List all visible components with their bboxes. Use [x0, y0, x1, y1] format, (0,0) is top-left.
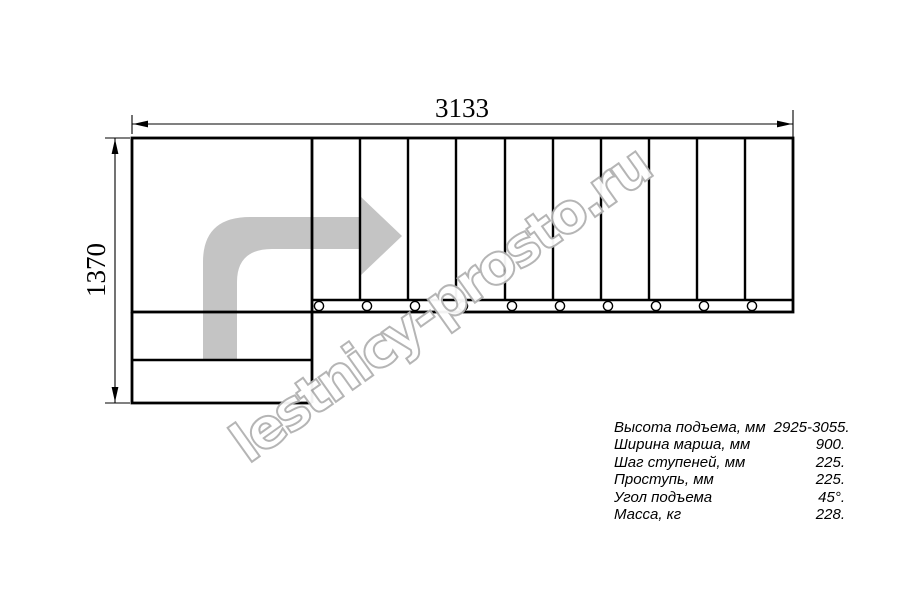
- spec-label: Шаг ступеней, мм: [614, 454, 745, 471]
- spec-label: Масса, кг: [614, 506, 681, 523]
- spec-value: 228.: [808, 506, 845, 523]
- spec-label: Ширина марша, мм: [614, 436, 750, 453]
- spec-value: 2925-3055.: [766, 419, 850, 436]
- spec-value: 45°.: [810, 489, 845, 506]
- spec-value: 900.: [808, 436, 845, 453]
- spec-row: Масса, кг 228.: [614, 506, 845, 523]
- watermark-text: lestnicy-prosto.ru: [219, 133, 662, 475]
- spec-label: Высота подъема, мм: [614, 419, 766, 436]
- width-dimension-label: 3133: [435, 93, 489, 123]
- staircase-plan-page: lestnicy-prosto.ru 3133 1370 Высота подъ…: [0, 0, 900, 600]
- height-dimension-label: 1370: [81, 243, 111, 297]
- spec-label: Угол подъема: [614, 489, 712, 506]
- spec-label: Проступь, мм: [614, 471, 714, 488]
- spec-row: Высота подъема, мм 2925-3055.: [614, 419, 845, 436]
- spec-row: Угол подъема 45°.: [614, 489, 845, 506]
- spec-row: Шаг ступеней, мм 225.: [614, 454, 845, 471]
- spec-row: Проступь, мм 225.: [614, 471, 845, 488]
- spec-table: Высота подъема, мм 2925-3055. Ширина мар…: [614, 419, 845, 523]
- spec-value: 225.: [808, 471, 845, 488]
- spec-value: 225.: [808, 454, 845, 471]
- spec-row: Ширина марша, мм 900.: [614, 436, 845, 453]
